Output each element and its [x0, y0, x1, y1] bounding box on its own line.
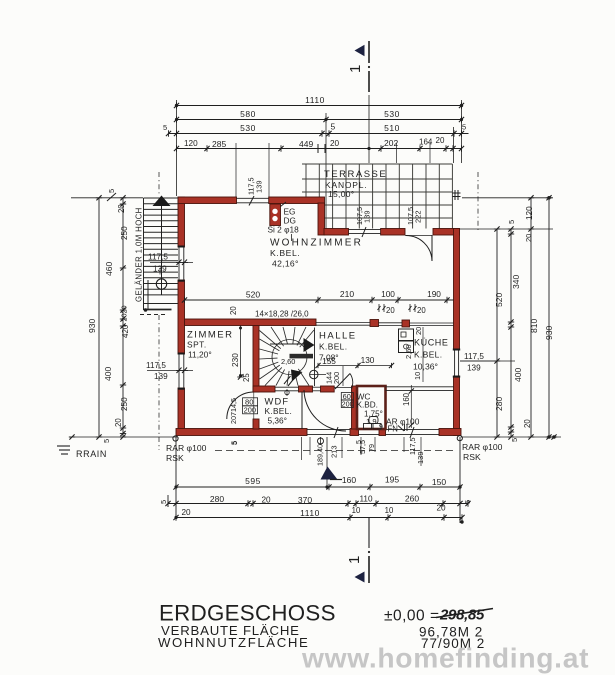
svg-text:164: 164 [419, 138, 433, 147]
svg-text:460: 460 [104, 262, 114, 276]
svg-text:340: 340 [511, 275, 521, 289]
svg-text:160: 160 [402, 392, 411, 406]
svg-text:5: 5 [163, 123, 167, 132]
svg-text:FN: FN [388, 425, 398, 434]
svg-text:190: 190 [427, 289, 441, 299]
svg-text:110: 110 [359, 495, 372, 504]
svg-text:510: 510 [384, 123, 400, 133]
svg-text:RSK: RSK [166, 453, 184, 463]
svg-text:20: 20 [229, 306, 238, 315]
svg-text:200: 200 [332, 372, 341, 384]
svg-text:200: 200 [342, 400, 354, 409]
svg-text:2,60: 2,60 [281, 357, 295, 366]
svg-text:5: 5 [159, 500, 168, 504]
svg-text:530: 530 [384, 109, 400, 119]
svg-text:5: 5 [356, 440, 363, 444]
svg-text:230: 230 [230, 353, 240, 367]
svg-text:10: 10 [385, 506, 394, 515]
svg-text:520: 520 [246, 290, 260, 300]
svg-text:TERRASSE: TERRASSE [324, 169, 387, 180]
svg-text:1110: 1110 [305, 95, 325, 105]
svg-text:20: 20 [114, 418, 123, 427]
svg-text:20: 20 [261, 496, 271, 505]
svg-text:139: 139 [363, 210, 372, 223]
svg-text:260: 260 [405, 494, 419, 504]
svg-text:WOHNNUTZFLÄCHE: WOHNNUTZFLÄCHE [158, 635, 309, 650]
svg-text:20: 20 [120, 314, 129, 322]
svg-text:5: 5 [107, 189, 116, 193]
svg-text:WOHNZIMMER: WOHNZIMMER [270, 238, 363, 249]
svg-text:20: 20 [524, 234, 533, 242]
svg-text:449: 449 [299, 139, 313, 149]
svg-text:280: 280 [210, 494, 224, 504]
svg-text:20: 20 [386, 306, 395, 315]
svg-text:400: 400 [513, 368, 523, 382]
svg-text:200: 200 [244, 406, 256, 415]
svg-text:20: 20 [330, 139, 340, 148]
svg-text:155: 155 [322, 356, 336, 366]
svg-text:250: 250 [120, 397, 129, 411]
svg-text:420: 420 [121, 324, 130, 338]
svg-text:KÜCHE: KÜCHE [414, 338, 449, 348]
svg-text:370: 370 [298, 495, 312, 505]
svg-text:210: 210 [340, 289, 354, 299]
svg-text:120: 120 [184, 139, 198, 148]
svg-text:20: 20 [117, 204, 126, 213]
svg-text:810: 810 [529, 319, 539, 333]
svg-text:5: 5 [462, 123, 466, 132]
svg-text:±0,00 =: ±0,00 = [384, 608, 440, 625]
svg-text:10: 10 [352, 506, 361, 515]
svg-text:5: 5 [463, 500, 472, 504]
svg-text:WDF: WDF [265, 397, 290, 407]
svg-text:139: 139 [416, 451, 425, 464]
svg-text:298,85: 298,85 [439, 607, 485, 624]
svg-text:10,36°: 10,36° [413, 362, 438, 372]
svg-text:930: 930 [87, 319, 97, 333]
svg-text:www.homefinding.at: www.homefinding.at [301, 642, 589, 674]
svg-text:117,5: 117,5 [464, 352, 484, 361]
svg-text:5,36°: 5,36° [268, 416, 287, 426]
svg-text:520: 520 [494, 293, 504, 307]
svg-text:530: 530 [240, 123, 256, 133]
svg-text:20: 20 [417, 306, 426, 315]
svg-text:139: 139 [467, 364, 481, 373]
svg-text:K.BEL.: K.BEL. [414, 350, 442, 360]
svg-text:213: 213 [330, 445, 339, 458]
svg-text:1: 1 [346, 556, 363, 564]
svg-text:14×18,28 /26,0: 14×18,28 /26,0 [255, 310, 309, 319]
svg-text:RAR φ100: RAR φ100 [166, 443, 207, 453]
svg-text:117,5: 117,5 [148, 253, 168, 262]
svg-text:15,00°: 15,00° [328, 189, 354, 199]
svg-text:RAR φ100: RAR φ100 [462, 442, 503, 452]
svg-text:5: 5 [331, 122, 336, 132]
svg-text:,9: ,9 [377, 424, 383, 431]
svg-text:Si 2 φ18: Si 2 φ18 [268, 225, 300, 235]
svg-text:42,16°: 42,16° [272, 259, 299, 269]
svg-text:285: 285 [212, 139, 226, 149]
svg-text:20: 20 [120, 306, 129, 314]
svg-text:RRAIN: RRAIN [76, 449, 107, 459]
svg-text:930: 930 [544, 326, 554, 340]
svg-text:280: 280 [494, 397, 504, 411]
svg-text:11,20°: 11,20° [188, 350, 212, 360]
svg-text:1: 1 [347, 65, 364, 73]
svg-text:20: 20 [523, 419, 532, 428]
svg-text:GELÄNDER 1,0M HOCH: GELÄNDER 1,0M HOCH [135, 207, 144, 302]
svg-text:SPT.: SPT. [187, 340, 207, 350]
svg-text:222: 222 [414, 210, 423, 223]
svg-text:20: 20 [436, 504, 446, 513]
svg-text:5: 5 [230, 441, 239, 445]
svg-text:100: 100 [381, 289, 395, 299]
svg-text:K.BEL.: K.BEL. [319, 342, 347, 352]
svg-text:20: 20 [414, 327, 423, 335]
svg-text:400: 400 [103, 367, 113, 381]
svg-text:5: 5 [507, 220, 516, 224]
svg-text:5: 5 [510, 438, 519, 442]
svg-text:10: 10 [413, 372, 422, 380]
svg-text:2,60: 2,60 [404, 344, 413, 359]
svg-text:117,5: 117,5 [146, 361, 166, 370]
svg-text:RSK: RSK [463, 452, 481, 462]
svg-text:120: 120 [525, 206, 534, 220]
svg-text:K.BEL.: K.BEL. [265, 406, 293, 416]
svg-text:139: 139 [255, 180, 264, 193]
svg-text:ERDGESCHOSS: ERDGESCHOSS [159, 601, 336, 626]
svg-text:20: 20 [181, 508, 191, 517]
svg-text:HALLE: HALLE [319, 331, 357, 342]
svg-text:595: 595 [245, 476, 261, 486]
svg-text:150: 150 [432, 477, 446, 487]
svg-text:K.BD.: K.BD. [357, 401, 378, 410]
svg-text:20: 20 [436, 136, 445, 145]
svg-text:5: 5 [102, 439, 111, 443]
svg-text:139: 139 [154, 372, 168, 381]
svg-text:130: 130 [361, 355, 375, 365]
svg-text:K.BEL.: K.BEL. [270, 248, 300, 258]
svg-text:189,40: 189,40 [316, 444, 325, 466]
svg-text:25: 25 [242, 373, 251, 382]
svg-text:250: 250 [120, 226, 129, 240]
svg-text:195: 195 [385, 475, 399, 485]
svg-text:20714,5: 20714,5 [229, 398, 238, 424]
svg-text:580: 580 [240, 109, 256, 119]
svg-text:1110: 1110 [300, 508, 320, 518]
svg-text:160: 160 [342, 475, 356, 485]
